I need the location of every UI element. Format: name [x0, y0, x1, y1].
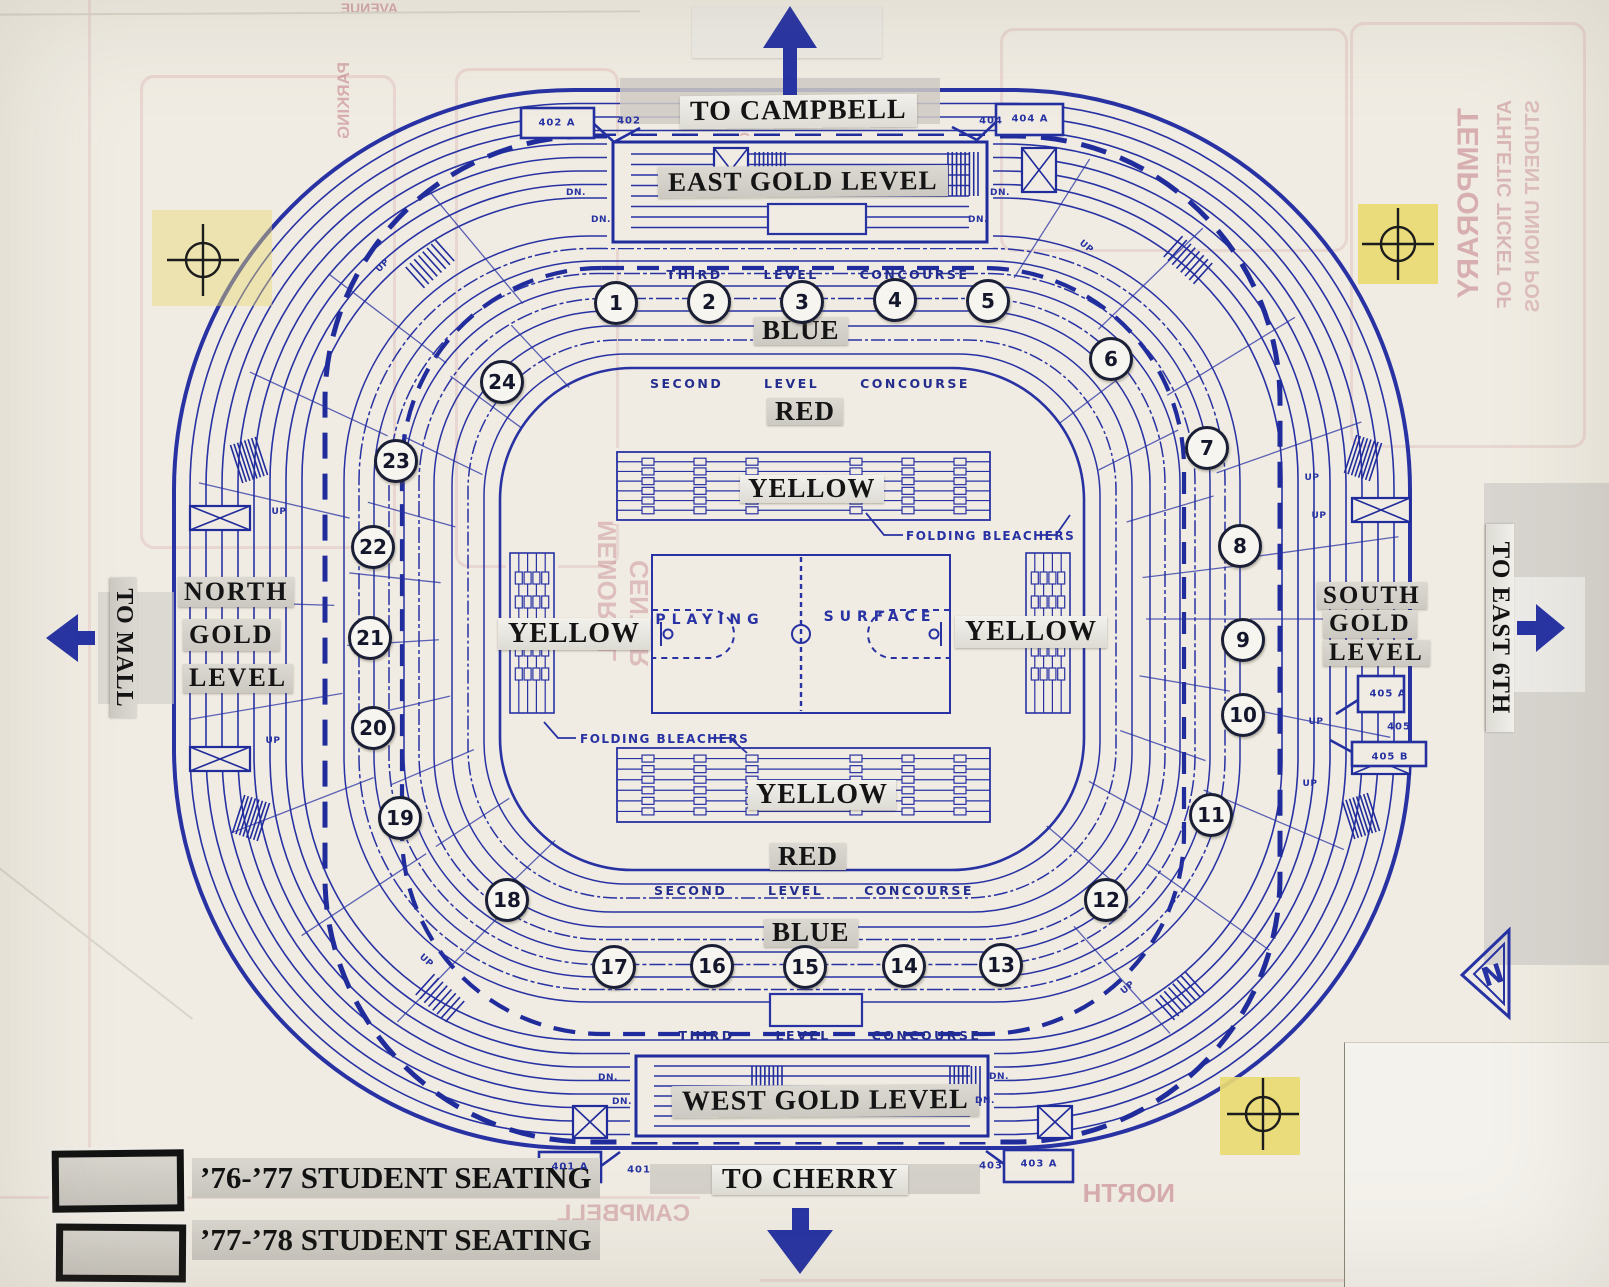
level-label-yellow-top: YELLOW [740, 475, 884, 503]
third-level-concourse-bottom: THIRD LEVEL CONCOURSE [679, 1028, 982, 1043]
registration-tag [1358, 204, 1438, 284]
level-label-red-bottom: RED [770, 843, 846, 870]
gold-level-label-south-3: LEVEL [1323, 640, 1430, 666]
level-label-red-top: RED [767, 398, 843, 425]
folding-bleachers-label-top: FOLDING BLEACHERS [906, 529, 1075, 543]
gold-level-label-north-1: NORTH [178, 577, 294, 607]
registration-tag [152, 210, 272, 306]
gold-level-label-south-1: SOUTH [1317, 582, 1427, 609]
legend-swatch-76-77 [52, 1149, 185, 1212]
level-label-yellow-right: YELLOW [955, 616, 1107, 648]
direction-label-cherry: TO CHERRY [712, 1165, 908, 1195]
level-label-yellow-bottom: YELLOW [748, 780, 896, 810]
legend-swatch-77-78 [56, 1224, 186, 1283]
legend-label-76-77: ’76-’77 STUDENT SEATING [192, 1158, 600, 1198]
direction-label-campbell: TO CAMPBELL [680, 94, 917, 129]
folding-bleachers-label-bottom: FOLDING BLEACHERS [580, 732, 749, 746]
third-level-concourse-top: THIRD LEVEL CONCOURSE [667, 267, 970, 282]
gold-level-label-west: WEST GOLD LEVEL [672, 1084, 979, 1118]
legend-label-77-78: ’77-’78 STUDENT SEATING [192, 1220, 600, 1260]
court-label-playing: PLAYING [655, 612, 764, 628]
direction-label-mall: TO MALL [110, 578, 137, 718]
gold-level-label-east: EAST GOLD LEVEL [658, 165, 948, 198]
gold-level-label-north-3: LEVEL [183, 664, 293, 693]
level-label-yellow-left: YELLOW [498, 618, 650, 650]
seating-chart-scan: AVENUEPARKINGCHERRYTEMPORARYATHLETIC TIC… [0, 0, 1609, 1287]
level-label-blue-top: BLUE [754, 317, 848, 345]
gold-level-label-south-2: GOLD [1323, 610, 1417, 638]
second-level-concourse-bottom: SECOND LEVEL CONCOURSE [654, 883, 974, 898]
court-label-surface: SURFACE [824, 609, 937, 625]
second-level-concourse-top: SECOND LEVEL CONCOURSE [650, 376, 970, 391]
registration-tag [1220, 1077, 1300, 1155]
gold-level-label-north-2: GOLD [183, 619, 280, 651]
playing-court [652, 555, 950, 713]
direction-label-east6th: TO EAST 6TH [1486, 524, 1514, 732]
level-label-blue-bottom: BLUE [764, 919, 858, 947]
